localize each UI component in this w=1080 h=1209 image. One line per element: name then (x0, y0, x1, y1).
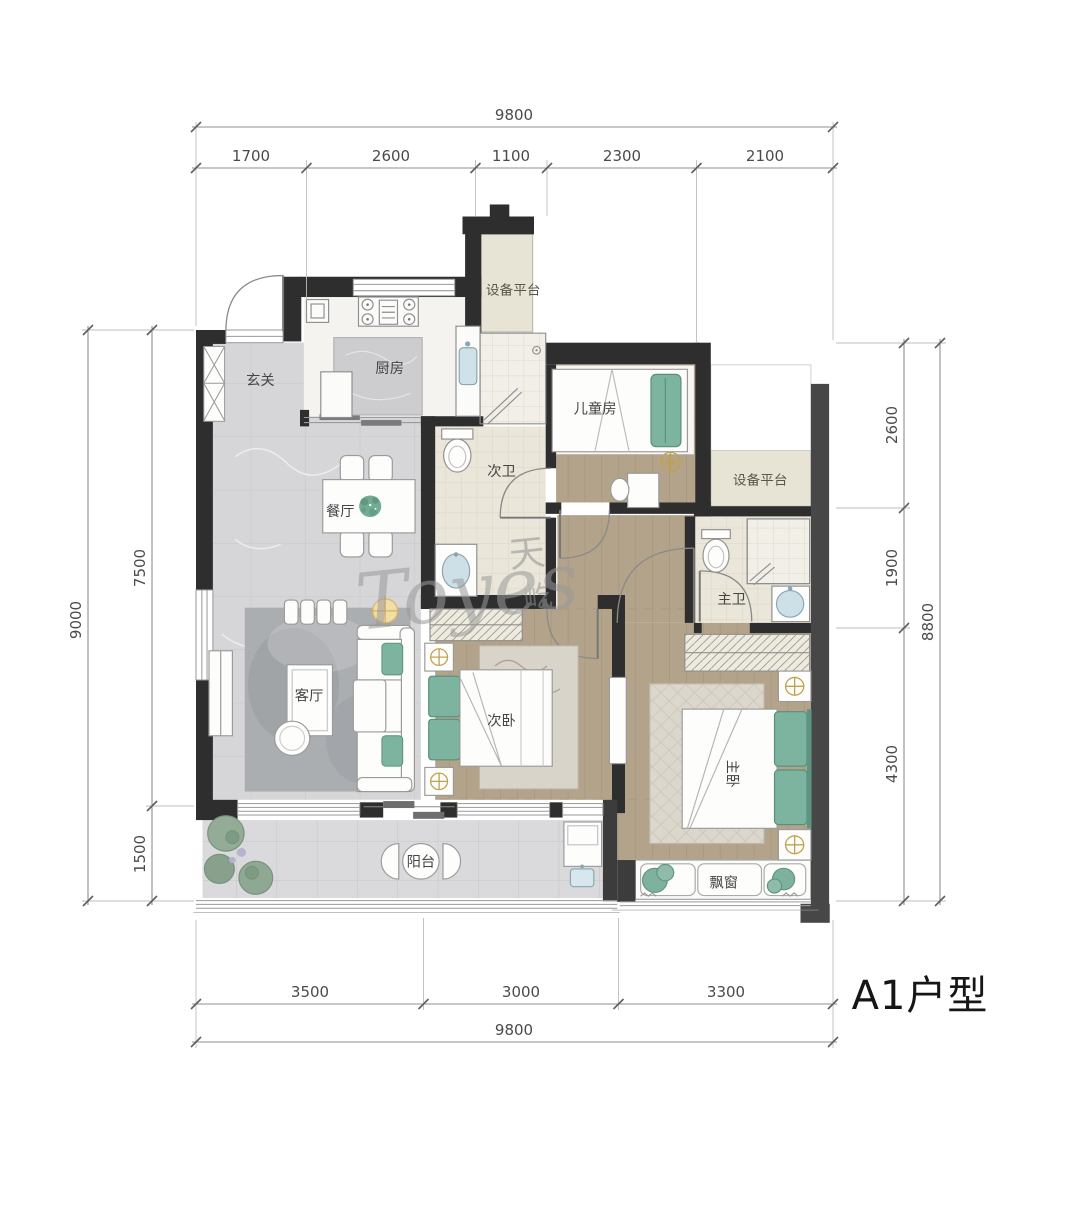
balcony-sink (570, 869, 593, 887)
label-bay: 飘窗 (710, 874, 739, 891)
dim-top-1: 1700 (232, 147, 270, 165)
label-kitchen: 厨房 (375, 361, 404, 377)
watermark-char2: 屹 (522, 579, 554, 616)
floor-cushion (333, 600, 347, 624)
table-plant (359, 495, 381, 517)
dim-right-total: 8800 (919, 603, 937, 641)
floorplan-canvas: 玄关 厨房 设备平台 儿童房 次卫 餐厅 设备平台 主卫 客厅 次卧 主卧 阳台… (0, 0, 1080, 1209)
dim-top-5: 2100 (746, 147, 784, 165)
label-kids: 儿童房 (574, 401, 617, 418)
laundry-cabinet (564, 822, 602, 866)
sofa-chaise (353, 680, 386, 732)
label-bed2: 次卧 (487, 714, 516, 730)
dining-chair (369, 456, 392, 483)
bed2-pillow (429, 676, 460, 717)
label-bath2: 次卫 (487, 464, 516, 480)
window-laundry (563, 804, 603, 815)
dim-bottom-2: 3000 (502, 983, 540, 1001)
stove (359, 297, 419, 326)
sink (776, 591, 803, 618)
label-bath1: 主卫 (717, 592, 746, 608)
sofa-cushion-teal (382, 643, 403, 675)
void (711, 365, 811, 451)
floor-cushion (317, 600, 331, 624)
window-kitchen (353, 279, 454, 295)
dim-top-4: 2300 (603, 147, 641, 165)
dim-top-3: 1100 (492, 147, 530, 165)
kids-chair (611, 478, 629, 501)
window-bed2-balcony (457, 804, 549, 815)
dim-bottom-total: 9800 (495, 1021, 533, 1039)
master-pillow (775, 712, 808, 767)
dim-left-1: 7500 (131, 549, 149, 587)
label-equip-top: 设备平台 (486, 282, 541, 299)
entry-door-arc (226, 275, 283, 331)
toilet-tank (702, 530, 731, 539)
dim-top-total: 9800 (495, 106, 533, 124)
kids-bed-pillow (651, 374, 681, 446)
toilet-tank (442, 429, 473, 439)
window-living-balcony (238, 804, 360, 815)
label-living: 客厅 (295, 687, 324, 704)
entry-threshold (226, 330, 283, 343)
kitchen-sink (459, 348, 477, 385)
plan-title: A1户型 (852, 973, 989, 1019)
master-pillow (775, 770, 808, 825)
watermark-char1: 天 (507, 532, 547, 577)
dim-right-3: 4300 (883, 745, 901, 783)
dim-bottom-1: 3500 (291, 983, 329, 1001)
dim-right-2: 1900 (883, 549, 901, 587)
ceiling-ornament (661, 452, 681, 471)
dim-left-total: 9000 (67, 601, 85, 639)
kitchen-cabinet (321, 372, 352, 418)
dim-top-2: 2600 (372, 147, 410, 165)
label-balcony: 阳台 (407, 855, 436, 871)
window-bay-rail (612, 902, 819, 910)
shoe-cabinet (204, 346, 225, 421)
label-bed1: 主卧 (724, 760, 740, 788)
label-entry: 玄关 (246, 372, 275, 389)
floor-cushion (301, 600, 315, 624)
label-equip-right: 设备平台 (733, 472, 788, 489)
bed2-pillow (429, 719, 460, 760)
sofa-armrest (357, 778, 412, 792)
kitchen-corner-cabinet (307, 300, 329, 323)
dim-left-2: 1500 (131, 835, 149, 873)
sofa-cushion-teal (382, 736, 403, 766)
dim-bottom-3: 3300 (707, 983, 745, 1001)
floorplan-page: 玄关 厨房 设备平台 儿童房 次卫 餐厅 设备平台 主卫 客厅 次卧 主卧 阳台… (0, 0, 1080, 1209)
dining-chair (369, 530, 392, 557)
dining-chair (340, 456, 363, 483)
floor-cushion (284, 600, 298, 624)
dim-right-1: 2600 (883, 406, 901, 444)
window-balcony-rail (193, 901, 619, 913)
label-dining: 餐厅 (326, 504, 355, 520)
wall-console (609, 677, 626, 763)
dining-chair (340, 530, 363, 557)
kids-desk (628, 473, 659, 507)
